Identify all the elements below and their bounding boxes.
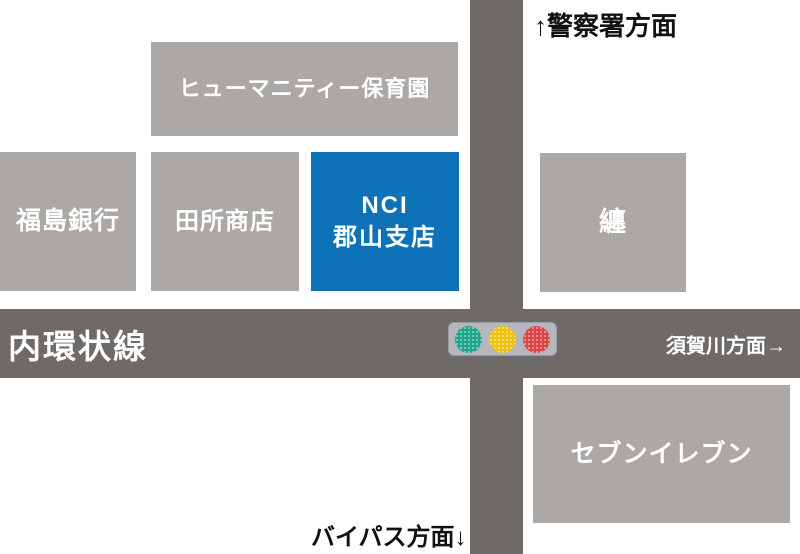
building-humanity-nursery: ヒューマニティー保育園 <box>151 42 458 136</box>
road-name-label: 内環状線 <box>8 320 148 368</box>
building-label: ヒューマニティー保育園 <box>179 75 431 104</box>
signal-yellow-icon <box>489 326 516 353</box>
direction-sukagawa-label: 須賀川方面→ <box>666 329 786 358</box>
building-matoi: 纏 <box>540 153 686 292</box>
building-nci-koriyama-branch: NCI 郡山支店 <box>311 152 459 291</box>
signal-red-icon <box>523 326 550 353</box>
access-map: 内環状線 須賀川方面→ ヒューマニティー保育園 福島銀行 田所商店 NCI 郡山… <box>0 0 800 554</box>
building-seven-eleven: セブンイレブン <box>533 385 790 523</box>
building-fukushima-bank: 福島銀行 <box>0 152 136 291</box>
building-tadokoro-shoten: 田所商店 <box>151 152 299 291</box>
direction-bypass-label: バイパス方面↓ <box>311 517 467 552</box>
building-label-line1: NCI <box>361 190 408 221</box>
traffic-light-icon <box>448 322 557 356</box>
signal-green-icon <box>455 326 482 353</box>
building-label: セブンイレブン <box>570 438 752 471</box>
direction-police-station-label: ↑警察署方面 <box>534 6 677 43</box>
building-label: 纏 <box>599 205 627 240</box>
vertical-road <box>470 0 523 554</box>
building-label: 田所商店 <box>175 206 275 237</box>
building-label: 福島銀行 <box>16 205 120 238</box>
horizontal-road: 内環状線 須賀川方面→ <box>0 309 800 378</box>
building-label-line2: 郡山支店 <box>333 222 437 253</box>
